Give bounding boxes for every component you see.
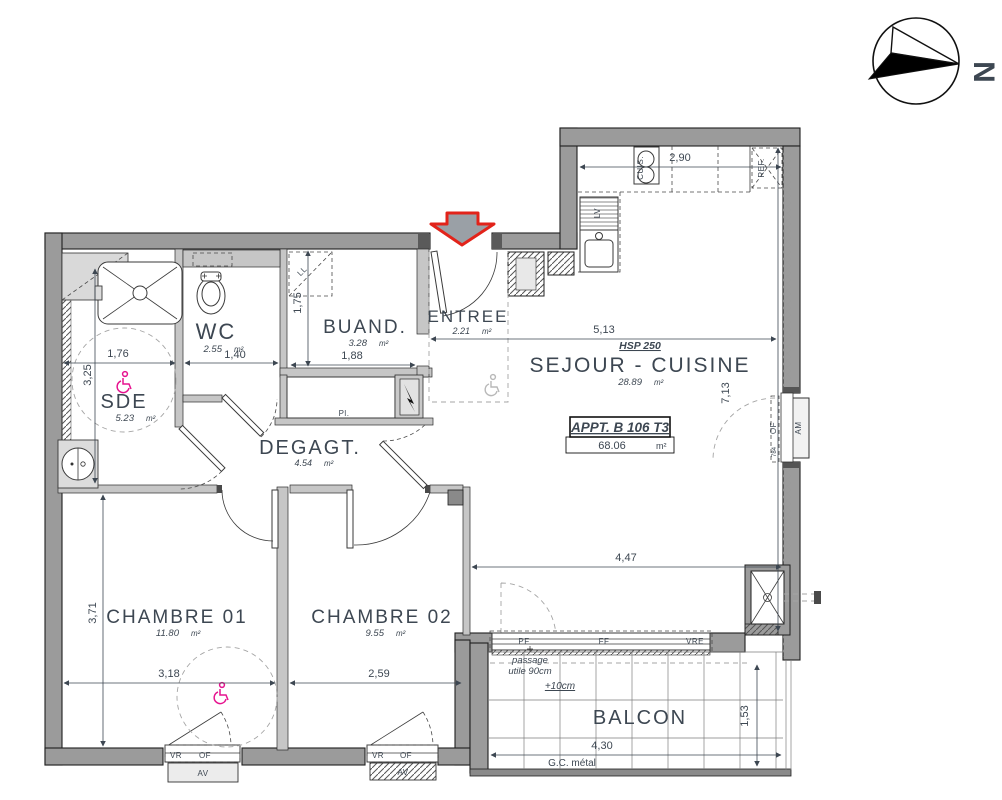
wc-door — [222, 394, 277, 437]
apartment-title-box: APPT. B 106 T3 68.06 m² — [566, 417, 674, 453]
apartment-label: APPT. B 106 T3 — [570, 420, 670, 435]
room-area-sde: 5.23 — [116, 413, 135, 424]
ch2-window-vr: VR — [372, 751, 384, 760]
room-area-degagt: 4.54 — [294, 458, 312, 468]
balcony-gc-note: G.C. métal — [548, 758, 596, 769]
room-name-entree: ENTREE — [428, 307, 509, 326]
unit-sejour: m² — [654, 378, 664, 387]
chambre1-door — [222, 490, 278, 548]
unit-buand: m² — [379, 339, 389, 348]
balcony-level-note: +10cm — [545, 681, 575, 692]
room-area-chambre1: 11.80 — [156, 628, 180, 639]
kitchen-sink-icon — [580, 230, 618, 272]
north-compass-icon: N — [869, 18, 1000, 104]
apartment-area-unit: m² — [656, 441, 667, 451]
toilet — [197, 272, 225, 314]
room-area-entree: 2.21 — [451, 326, 470, 336]
washer-slot — [289, 252, 332, 296]
dim-chambre2-width: 2,59 — [368, 668, 389, 680]
ch1-window-of: OF — [199, 751, 211, 760]
floor-plan-page: N 1,76 3,25 1,40 1,75 1,88 2,90 5,13 7,1… — [0, 0, 1002, 800]
bay-label-pf: PF — [518, 637, 529, 646]
entrance-arrow-icon — [431, 213, 494, 245]
closet — [287, 375, 423, 418]
dim-sejour-width: 5,13 — [593, 324, 614, 336]
cooktop-label: CUIS. — [636, 156, 645, 180]
wheelchair-icon-sde — [117, 372, 131, 393]
room-name-wc: WC — [196, 319, 237, 344]
floor-plan: N 1,76 3,25 1,40 1,75 1,88 2,90 5,13 7,1… — [0, 0, 1002, 800]
ch1-sill-av: AV — [197, 769, 208, 778]
dishwasher-label: LV — [593, 208, 602, 218]
duct-shaft — [745, 565, 821, 635]
ch1-window-vr: VR — [170, 751, 182, 760]
dim-buand-height: 1,75 — [292, 292, 304, 313]
dim-sde-height: 3,25 — [82, 364, 94, 385]
dim-buand-width: 1,88 — [341, 350, 362, 362]
washer-label: LL — [296, 265, 309, 278]
closet-label: Pl. — [339, 409, 350, 418]
sde-door — [179, 425, 225, 489]
dim-balcon-width: 4,30 — [591, 740, 612, 752]
unit-chambre2: m² — [396, 629, 406, 638]
room-area-wc: 2.55 — [203, 344, 223, 355]
wheelchair-icon-entree — [485, 375, 499, 396]
dim-kitchen-width: 2,90 — [669, 152, 690, 164]
bay-label-ff: FF — [599, 637, 610, 646]
passage-note-1: passage — [511, 655, 548, 666]
room-name-buand: BUAND. — [323, 317, 407, 338]
room-name-chambre1: CHAMBRE 01 — [106, 607, 247, 628]
room-name-degagt: DEGAGT. — [259, 437, 361, 459]
east-window-of: OF — [769, 422, 778, 434]
unit-entree: m² — [482, 327, 492, 336]
wheelchair-icon-chambre1 — [214, 683, 228, 704]
east-window-am: AM — [794, 422, 803, 435]
chambre2-door — [347, 490, 430, 548]
unit-sde: m² — [146, 414, 156, 423]
chambre2-window-swing — [369, 712, 433, 746]
room-area-sejour: 28.89 — [617, 377, 642, 388]
room-name-balcon: BALCON — [593, 707, 687, 729]
balcony-door-swing — [501, 583, 556, 637]
shower-tray — [95, 262, 182, 324]
room-name-sejour: SEJOUR - CUISINE — [529, 354, 750, 377]
ch2-window-of: OF — [400, 751, 412, 760]
accessibility-marks — [72, 252, 508, 747]
east-window-dim: 784 — [772, 446, 778, 457]
apartment-area: 68.06 — [598, 440, 626, 452]
ch2-sill-av: AV — [397, 768, 408, 777]
room-area-buand: 3.28 — [349, 338, 368, 349]
passage-note-2: utile 90cm — [508, 666, 551, 677]
dim-sejour-height: 7,13 — [720, 382, 732, 403]
dim-balcon-height: 1,53 — [739, 705, 751, 726]
degagt-sejour-door — [380, 423, 427, 489]
dim-sejour-south: 4,47 — [615, 552, 636, 564]
room-name-chambre2: CHAMBRE 02 — [311, 607, 452, 628]
dim-sde-width: 1,76 — [107, 348, 128, 360]
room-name-sde: SDE — [100, 391, 147, 413]
fridge-label: REF. — [757, 158, 766, 177]
bay-label-vre: VRE — [686, 637, 704, 646]
room-area-chambre2: 9.55 — [366, 628, 385, 639]
washbasin — [58, 440, 98, 488]
chambre1-window-swing — [167, 712, 231, 746]
kitchen-counter — [578, 146, 782, 272]
dim-chambre1-width: 3,18 — [158, 668, 179, 680]
unit-chambre1: m² — [191, 629, 201, 638]
unit-degagt: m² — [324, 459, 334, 468]
unit-wc: m² — [234, 345, 244, 354]
dim-chambre-height: 3,71 — [87, 602, 99, 623]
north-label: N — [967, 61, 1000, 83]
sejour-hsp-note: HSP 250 — [619, 340, 661, 352]
